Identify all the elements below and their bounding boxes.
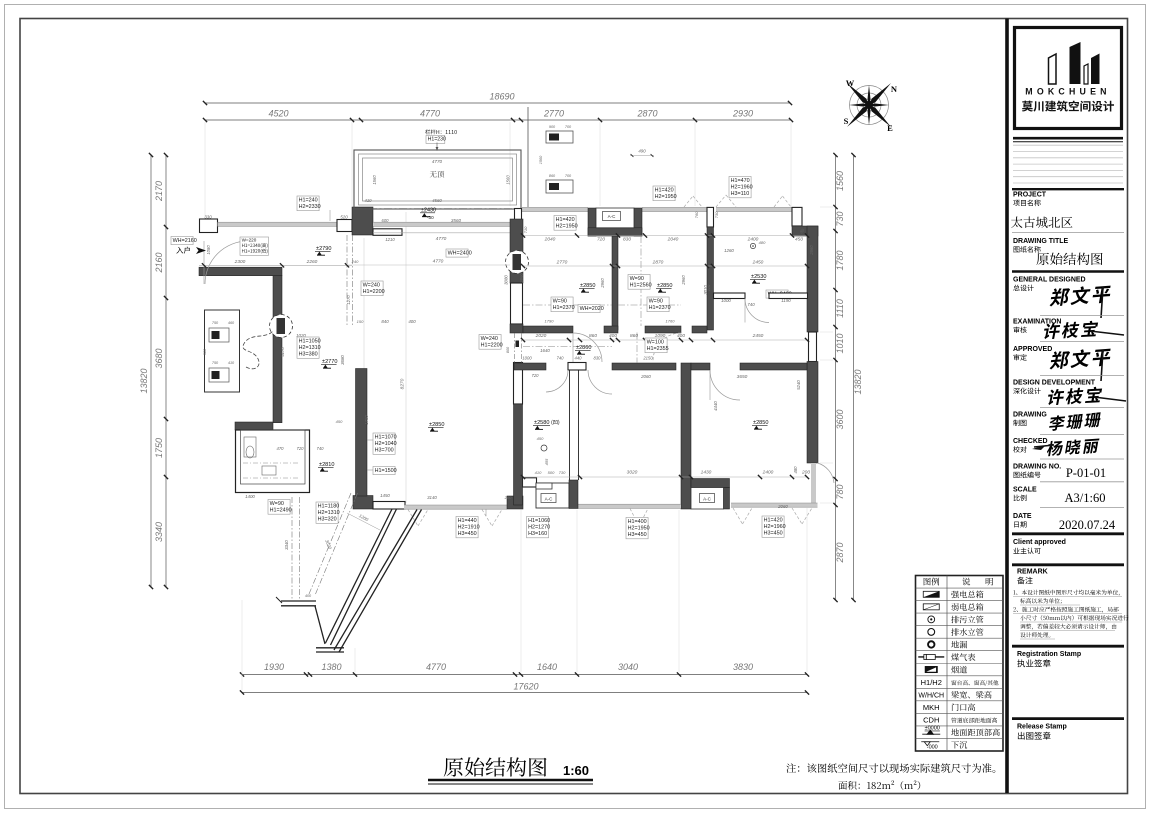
svg-text:1750: 1750 — [154, 438, 164, 458]
svg-text:W=240: W=240 — [363, 282, 380, 288]
svg-text:Registration Stamp: Registration Stamp — [1017, 651, 1081, 658]
svg-text:830: 830 — [623, 237, 631, 243]
svg-text:W/H/CH: W/H/CH — [918, 693, 944, 700]
svg-text:2450: 2450 — [752, 260, 764, 266]
svg-text:±0000: ±0000 — [925, 726, 940, 732]
svg-text:400: 400 — [305, 594, 312, 598]
svg-text:H1=1500: H1=1500 — [375, 468, 397, 474]
svg-text:1380: 1380 — [321, 662, 341, 672]
svg-text:H3=380: H3=380 — [299, 352, 318, 358]
svg-text:1560: 1560 — [506, 175, 511, 185]
svg-text:2960: 2960 — [600, 278, 605, 289]
svg-text:W=100: W=100 — [647, 339, 664, 345]
svg-text:H1=440: H1=440 — [458, 518, 477, 524]
svg-text:MOKCHUEN: MOKCHUEN — [1025, 87, 1110, 97]
svg-text:H3=450: H3=450 — [764, 531, 783, 537]
svg-text:13820: 13820 — [139, 368, 149, 393]
svg-text:1780: 1780 — [835, 250, 845, 270]
svg-text:410: 410 — [535, 470, 542, 475]
svg-text:1010: 1010 — [835, 333, 845, 353]
svg-text:MKH: MKH — [923, 703, 940, 712]
svg-text:3020: 3020 — [627, 470, 638, 476]
svg-text:480: 480 — [759, 240, 766, 245]
svg-text:17620: 17620 — [513, 682, 538, 692]
svg-text:3600: 3600 — [835, 409, 845, 429]
svg-text:480: 480 — [793, 466, 798, 474]
svg-text:3140: 3140 — [427, 495, 437, 500]
svg-text:2040: 2040 — [667, 237, 679, 243]
svg-text:740: 740 — [557, 356, 565, 361]
svg-text:DRAWING TITLE: DRAWING TITLE — [1013, 238, 1069, 245]
svg-text:8270: 8270 — [400, 378, 406, 389]
svg-text:2770: 2770 — [543, 109, 564, 119]
svg-text:840: 840 — [381, 319, 389, 324]
svg-text:2300: 2300 — [234, 259, 246, 265]
svg-text:400: 400 — [408, 319, 416, 324]
svg-text:3680: 3680 — [340, 355, 345, 365]
svg-text:780: 780 — [835, 484, 845, 499]
svg-text:WH=2160: WH=2160 — [173, 238, 197, 244]
svg-text:3340: 3340 — [284, 540, 289, 550]
svg-text:860: 860 — [589, 333, 597, 339]
svg-text:2870: 2870 — [636, 109, 657, 119]
svg-text:W=90: W=90 — [553, 298, 567, 304]
svg-text:H1=420: H1=420 — [655, 187, 674, 193]
svg-text:4770: 4770 — [436, 236, 447, 242]
svg-text:400: 400 — [677, 333, 685, 339]
svg-text:2020.07.24: 2020.07.24 — [1059, 518, 1116, 532]
svg-text:800: 800 — [506, 346, 510, 353]
svg-text:H2=1960: H2=1960 — [764, 524, 786, 530]
svg-text:3560: 3560 — [451, 218, 462, 223]
svg-text:3830: 3830 — [733, 662, 753, 672]
svg-text:3680: 3680 — [154, 348, 164, 368]
svg-text:H2=1040: H2=1040 — [375, 441, 397, 447]
svg-text:1560: 1560 — [539, 155, 543, 164]
svg-text:1790: 1790 — [545, 319, 555, 324]
svg-text:2960: 2960 — [681, 275, 686, 286]
svg-text:1260: 1260 — [724, 248, 734, 253]
svg-text:CDH: CDH — [923, 716, 939, 725]
svg-text:860: 860 — [549, 174, 556, 178]
svg-text:2770: 2770 — [556, 260, 568, 266]
svg-text:2930: 2930 — [732, 109, 753, 119]
svg-text:1750: 1750 — [364, 415, 369, 425]
svg-text:H2=1960: H2=1960 — [731, 185, 753, 191]
svg-text:H3=110: H3=110 — [731, 191, 750, 197]
svg-text:730: 730 — [835, 211, 845, 226]
svg-text:DRAWING: DRAWING — [1013, 412, 1047, 419]
svg-text:A3/1:60: A3/1:60 — [1065, 491, 1106, 505]
svg-text:REMARK: REMARK — [1017, 569, 1048, 576]
svg-text:3080: 3080 — [504, 275, 509, 285]
svg-text:3040: 3040 — [618, 662, 638, 672]
svg-text:H1/H2: H1/H2 — [921, 678, 942, 687]
svg-text:2450: 2450 — [752, 333, 764, 339]
svg-text:3650: 3650 — [737, 374, 748, 380]
svg-text:460: 460 — [228, 321, 235, 325]
svg-text:900: 900 — [549, 125, 556, 129]
svg-text:4560: 4560 — [432, 198, 442, 203]
svg-text:4770: 4770 — [432, 159, 443, 164]
svg-text:4770: 4770 — [420, 109, 440, 119]
svg-text:N: N — [891, 84, 898, 94]
svg-text:H1=2370: H1=2370 — [649, 305, 671, 311]
svg-text:2020: 2020 — [535, 333, 547, 339]
svg-text:200: 200 — [801, 470, 810, 476]
svg-text:1110: 1110 — [835, 299, 845, 318]
svg-text:W=90: W=90 — [649, 298, 663, 304]
svg-text:1760: 1760 — [666, 319, 676, 324]
svg-text:1560: 1560 — [372, 175, 377, 185]
svg-text:18690: 18690 — [489, 92, 514, 102]
svg-text:WH=2020: WH=2020 — [580, 306, 604, 312]
svg-text:330: 330 — [204, 215, 212, 220]
svg-text:2170: 2170 — [154, 181, 164, 202]
svg-text:470: 470 — [277, 446, 285, 451]
svg-text:H1=230: H1=230 — [428, 137, 446, 143]
svg-text:H2=1950: H2=1950 — [655, 194, 677, 200]
svg-text:H3=320: H3=320 — [318, 517, 337, 523]
svg-text:H1=1180: H1=1180 — [318, 503, 340, 509]
svg-text:2160: 2160 — [154, 252, 164, 273]
svg-text:SCALE: SCALE — [1013, 487, 1037, 494]
svg-text:H2=1270: H2=1270 — [528, 525, 550, 531]
svg-text:1210: 1210 — [385, 237, 395, 242]
svg-text:H2=1910: H2=1910 — [458, 525, 480, 531]
svg-text:WH=2400: WH=2400 — [448, 250, 472, 256]
svg-text:H3=160: H3=160 — [528, 531, 547, 537]
svg-text:720: 720 — [532, 373, 540, 378]
svg-text:750: 750 — [212, 321, 219, 325]
svg-text:-000: -000 — [927, 745, 938, 751]
svg-text:H1=2490: H1=2490 — [270, 508, 292, 514]
svg-text:740: 740 — [747, 302, 755, 307]
svg-text:H1=2200: H1=2200 — [363, 289, 385, 295]
svg-text:980: 980 — [203, 348, 207, 355]
svg-text:H1=420: H1=420 — [556, 217, 575, 223]
svg-text:1000: 1000 — [522, 356, 532, 361]
svg-text:450: 450 — [537, 436, 544, 441]
svg-text:Client approved: Client approved — [1013, 539, 1066, 546]
svg-text:700: 700 — [565, 174, 572, 178]
svg-text:730: 730 — [559, 470, 566, 475]
svg-text:1:60: 1:60 — [563, 763, 589, 778]
svg-text:H1=1050: H1=1050 — [299, 338, 321, 344]
svg-text:P-01-01: P-01-01 — [1066, 466, 1106, 480]
svg-text:W: W — [846, 78, 855, 88]
svg-text:DESIGN DEVELOPMENT: DESIGN DEVELOPMENT — [1013, 380, 1096, 387]
svg-text:1450: 1450 — [380, 493, 390, 498]
svg-text:GENERAL DESIGNED: GENERAL DESIGNED — [1013, 277, 1086, 284]
svg-text:H1=470: H1=470 — [731, 178, 750, 184]
svg-text:S: S — [844, 116, 849, 126]
svg-text:DRAWING NO.: DRAWING NO. — [1013, 464, 1061, 471]
svg-text:APPROVED: APPROVED — [1013, 346, 1052, 353]
svg-text:410: 410 — [365, 198, 373, 203]
svg-text:2150: 2150 — [642, 356, 653, 361]
svg-text:2870: 2870 — [835, 542, 845, 563]
svg-text:500: 500 — [548, 470, 555, 475]
svg-text:200: 200 — [504, 495, 512, 500]
svg-text:H1=400: H1=400 — [628, 519, 647, 525]
svg-text:W=240: W=240 — [481, 336, 498, 342]
svg-text:450: 450 — [336, 419, 343, 424]
svg-text:730: 730 — [714, 211, 719, 218]
svg-text:H1=2355: H1=2355 — [647, 346, 669, 352]
svg-text:1930: 1930 — [264, 662, 284, 672]
svg-text:410: 410 — [228, 361, 235, 365]
svg-text:E: E — [887, 123, 893, 133]
svg-text:H3=450: H3=450 — [628, 532, 647, 538]
svg-text:1080: 1080 — [206, 245, 211, 255]
svg-text:A-C: A-C — [608, 214, 617, 219]
svg-text:2060: 2060 — [777, 504, 788, 509]
svg-text:W=220: W=220 — [242, 237, 257, 242]
svg-text:H3=450: H3=450 — [458, 531, 477, 537]
svg-text:455: 455 — [544, 458, 549, 465]
svg-text:H1=1060: H1=1060 — [528, 518, 550, 524]
svg-text:4770: 4770 — [433, 259, 444, 265]
svg-text:5240: 5240 — [796, 380, 801, 390]
svg-text:4440: 4440 — [713, 401, 718, 411]
svg-text:A-C: A-C — [545, 497, 554, 502]
svg-text:H2=1950: H2=1950 — [628, 526, 650, 532]
svg-text:H1=2200: H1=2200 — [481, 343, 503, 349]
svg-text:1000: 1000 — [721, 298, 731, 303]
svg-text:1640: 1640 — [537, 662, 557, 672]
svg-text:2860: 2860 — [809, 245, 814, 256]
svg-text:2400: 2400 — [747, 237, 759, 243]
svg-text:720: 720 — [297, 446, 305, 451]
svg-text:W=90: W=90 — [270, 501, 284, 507]
svg-text:600: 600 — [382, 218, 390, 223]
svg-text:150: 150 — [357, 319, 364, 324]
svg-text:860: 860 — [630, 333, 638, 339]
svg-text:2260: 2260 — [306, 259, 318, 265]
svg-text:760: 760 — [694, 211, 699, 218]
svg-text:A-C: A-C — [703, 497, 712, 502]
svg-text:PROJECT: PROJECT — [1013, 192, 1047, 199]
svg-text:H2=2330: H2=2330 — [299, 204, 321, 210]
svg-text:W=90: W=90 — [630, 276, 644, 282]
svg-text:H2=1310: H2=1310 — [299, 345, 321, 351]
svg-text:DATE: DATE — [1013, 513, 1032, 520]
svg-text:H1=2370: H1=2370 — [553, 305, 575, 311]
svg-text:2870: 2870 — [652, 260, 664, 266]
svg-text:440: 440 — [575, 356, 583, 361]
svg-text:520: 520 — [340, 215, 348, 220]
svg-text:240: 240 — [351, 259, 359, 264]
svg-text:CHECKED: CHECKED — [1013, 438, 1048, 445]
svg-text:5170: 5170 — [280, 347, 285, 357]
svg-text:1270: 1270 — [346, 295, 351, 305]
svg-text:740: 740 — [317, 446, 325, 451]
svg-text:710: 710 — [523, 226, 528, 233]
svg-text:13820: 13820 — [853, 369, 863, 394]
svg-text:700: 700 — [565, 125, 572, 129]
svg-text:2400: 2400 — [762, 470, 774, 476]
svg-text:H1=2560: H1=2560 — [630, 283, 652, 289]
svg-text:H1=1070: H1=1070 — [375, 434, 397, 440]
svg-text:H1=240: H1=240 — [299, 197, 318, 203]
svg-text:1400: 1400 — [245, 494, 255, 499]
svg-text:490: 490 — [638, 149, 646, 154]
svg-text:2060: 2060 — [640, 374, 651, 379]
svg-text:4520: 4520 — [268, 109, 288, 119]
svg-text:H1=420: H1=420 — [764, 517, 783, 523]
svg-text:3010: 3010 — [703, 285, 708, 295]
svg-text:2040: 2040 — [544, 237, 556, 243]
svg-text:Release Stamp: Release Stamp — [1017, 724, 1067, 731]
svg-text:1190: 1190 — [781, 298, 791, 303]
svg-text:720: 720 — [597, 237, 605, 243]
svg-text:1430: 1430 — [701, 470, 712, 476]
svg-text:4770: 4770 — [426, 662, 446, 672]
svg-text:3340: 3340 — [154, 522, 164, 542]
svg-text:1560: 1560 — [835, 171, 845, 191]
svg-text:400: 400 — [609, 333, 617, 339]
svg-text:830: 830 — [594, 356, 602, 361]
svg-text:H2=1950: H2=1950 — [556, 224, 578, 230]
svg-text:2860: 2860 — [519, 273, 524, 284]
svg-text:H3=700: H3=700 — [375, 448, 394, 454]
svg-text:750: 750 — [212, 361, 219, 365]
svg-text:H2=1310: H2=1310 — [318, 510, 340, 516]
svg-text:1640: 1640 — [540, 348, 550, 353]
svg-text:-30: -30 — [427, 215, 434, 220]
svg-text:450: 450 — [795, 237, 803, 243]
